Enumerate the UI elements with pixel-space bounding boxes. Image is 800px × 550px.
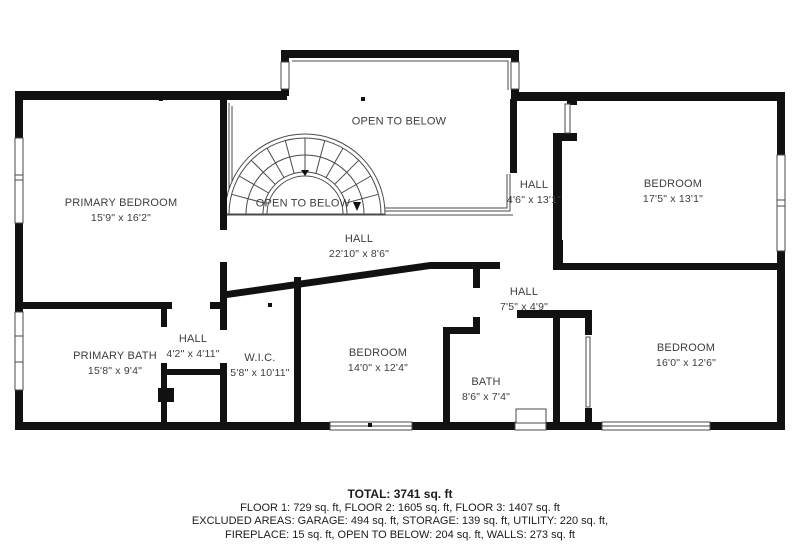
floorplan-page: OPEN TO BELOW PRIMARY BEDROOM 15'9" x 16…: [0, 0, 800, 550]
room-name: BATH: [471, 376, 500, 388]
room-dims: 16'0" x 12'6": [656, 356, 716, 371]
total-area-text: TOTAL: 3741 sq. ft: [0, 488, 800, 502]
room-label-bedroom-center: BEDROOM 14'0" x 12'4": [348, 346, 408, 376]
floorplan-drawing: [0, 0, 800, 550]
room-label-wic: W.I.C. 5'8" x 10'11": [230, 351, 289, 381]
room-name: OPEN TO BELOW: [256, 197, 351, 209]
room-name: HALL: [345, 233, 373, 245]
room-dims: 15'9" x 16'2": [65, 211, 178, 226]
room-label-primary-bedroom: PRIMARY BEDROOM 15'9" x 16'2": [65, 196, 178, 226]
bath-tub: [516, 409, 546, 423]
room-label-hall-upper-right: HALL 4'6" x 13'1": [507, 178, 561, 208]
room-dims: 7'5" x 4'9": [500, 300, 548, 315]
room-name: OPEN TO BELOW: [352, 115, 447, 127]
room-label-bedroom-lower-right: BEDROOM 16'0" x 12'6": [656, 341, 716, 371]
room-name: W.I.C.: [244, 352, 275, 364]
door-leaves: [565, 104, 590, 407]
room-label-primary-bath: PRIMARY BATH 15'8" x 9'4": [73, 349, 157, 379]
room-dims: 17'5" x 13'1": [643, 192, 703, 207]
room-name: HALL: [510, 286, 538, 298]
room-label-hall-center: HALL 22'10" x 8'6": [329, 232, 389, 262]
room-dims: 22'10" x 8'6": [329, 247, 389, 262]
room-dims: 5'8" x 10'11": [230, 366, 289, 381]
excluded-areas-text: EXCLUDED AREAS: GARAGE: 494 sq. ft, STOR…: [0, 515, 800, 529]
room-dims: 4'2" x 4'11": [166, 347, 219, 362]
room-label-hall-lower-right: HALL 7'5" x 4'9": [500, 285, 548, 315]
room-label-hall-small: HALL 4'2" x 4'11": [166, 332, 219, 362]
room-label-open-to-below-stairs: OPEN TO BELOW: [256, 196, 351, 211]
room-dims: 14'0" x 12'4": [348, 361, 408, 376]
room-name: HALL: [520, 179, 548, 191]
room-label-open-to-below-top: OPEN TO BELOW: [352, 114, 447, 129]
area-summary: TOTAL: 3741 sq. ft FLOOR 1: 729 sq. ft, …: [0, 488, 800, 542]
room-name: BEDROOM: [657, 342, 715, 354]
room-dims: 8'6" x 7'4": [462, 390, 510, 405]
room-name: PRIMARY BATH: [73, 350, 157, 362]
room-name: HALL: [179, 333, 207, 345]
room-label-bath: BATH 8'6" x 7'4": [462, 375, 510, 405]
room-name: PRIMARY BEDROOM: [65, 197, 178, 209]
room-label-bedroom-upper-right: BEDROOM 17'5" x 13'1": [643, 177, 703, 207]
room-name: BEDROOM: [349, 347, 407, 359]
floor-areas-text: FLOOR 1: 729 sq. ft, FLOOR 2: 1605 sq. f…: [0, 502, 800, 516]
room-dims: 15'8" x 9'4": [73, 364, 157, 379]
room-dims: 4'6" x 13'1": [507, 193, 561, 208]
room-name: BEDROOM: [644, 178, 702, 190]
excluded-areas-text-2: FIREPLACE: 15 sq. ft, OPEN TO BELOW: 204…: [0, 529, 800, 543]
